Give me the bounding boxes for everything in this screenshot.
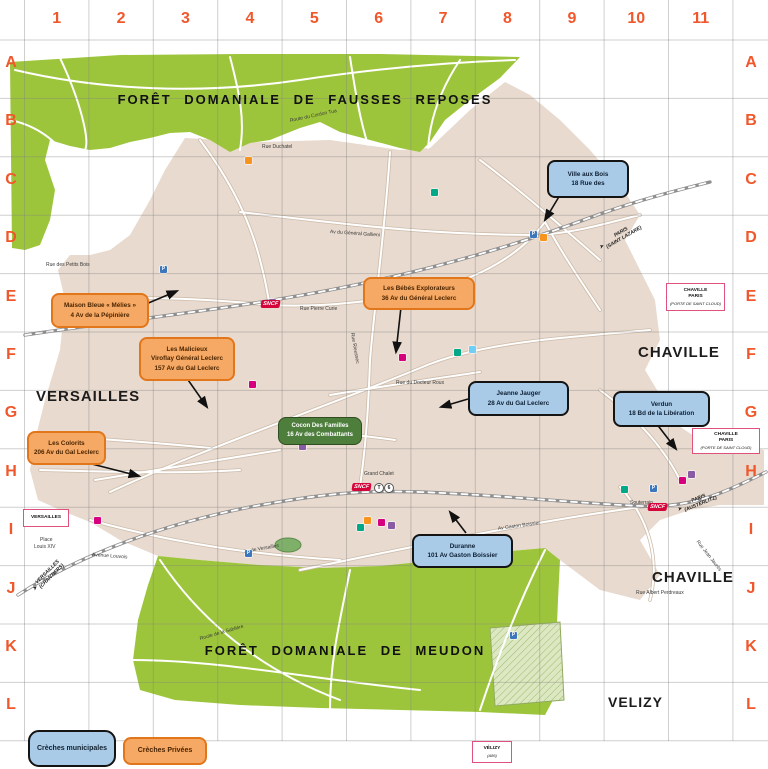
creche-callout-line: Maison Bleue « Mélies »	[64, 301, 136, 310]
street-label: Rue du Docteur Roux	[396, 380, 444, 386]
station-box-line: (PORTE DE SAINT CLOUD)	[667, 301, 724, 306]
grid-row-right-B: B	[745, 112, 757, 130]
creche-callout-jeanne-jauger: Jeanne Jauger28 Av du Gal Leclerc	[468, 381, 569, 416]
creche-callout-line: 4 Av de la Pépinière	[70, 311, 129, 320]
legend-private-label: Crèches Privées	[138, 746, 192, 755]
poi-marker-icon	[388, 522, 395, 529]
creche-callout-line: Verdun	[651, 400, 672, 409]
city-label-velizy-3: VELIZY	[608, 694, 663, 710]
grid-row-left-E: E	[6, 288, 17, 306]
direction-arrow-icon: ➤	[677, 506, 683, 513]
creche-callout-les-malicieux: Les MalicieuxViroflay Général Leclerc157…	[139, 337, 235, 381]
creche-callout-line: 16 Av des Combattants	[287, 431, 353, 440]
street-label: Grand Chalet	[364, 471, 394, 477]
parking-marker-icon: P	[245, 550, 252, 557]
grid-row-right-A: A	[745, 54, 757, 72]
grid-row-right-F: F	[746, 346, 756, 364]
poi-marker-icon	[378, 519, 385, 526]
grid-row-right-J: J	[747, 580, 756, 598]
grid-row-left-A: A	[5, 54, 17, 72]
poi-marker-icon	[540, 234, 547, 241]
grid-col-5: 5	[310, 10, 319, 28]
station-box-3: VÉLIZY(A86)	[472, 741, 512, 763]
sncf-logo-icon: SNCF	[647, 503, 667, 511]
grid-col-9: 9	[567, 10, 576, 28]
poi-marker-icon	[249, 381, 256, 388]
station-box-line: (PORTE DE SAINT CLOUD)	[693, 445, 759, 450]
legend-municipal-label: Crèches municipales	[37, 744, 107, 753]
city-label-chaville-1: CHAVILLE	[638, 344, 720, 361]
poi-marker-icon	[621, 486, 628, 493]
grid-col-11: 11	[692, 10, 709, 28]
grid-row-left-C: C	[5, 171, 17, 189]
station-box-2: VERSAILLES	[23, 509, 69, 527]
grid-row-right-G: G	[745, 404, 757, 422]
legend-creches-municipales: Crèches municipales	[28, 730, 116, 767]
poi-marker-icon	[688, 471, 695, 478]
creche-callout-line: 101 Av Gaston Boissier	[428, 551, 498, 560]
grid-row-left-J: J	[7, 580, 16, 598]
creche-callout-line: 28 Av du Gal Leclerc	[488, 399, 549, 408]
creche-callout-verdun: Verdun18 Bd de la Libération	[613, 391, 710, 427]
grid-row-right-D: D	[745, 229, 757, 247]
tram-badge-T: T	[374, 483, 384, 493]
grid-col-8: 8	[503, 10, 512, 28]
station-box-line: (A86)	[473, 753, 511, 758]
forest-label-1: FORÊT DOMANIALE DE MEUDON	[205, 643, 485, 658]
poi-marker-icon	[357, 524, 364, 531]
grid-col-7: 7	[439, 10, 448, 28]
grid-row-right-H: H	[745, 463, 757, 481]
poi-marker-icon	[454, 349, 461, 356]
grid-row-left-K: K	[5, 638, 17, 656]
poi-marker-icon	[431, 189, 438, 196]
grid-row-left-I: I	[9, 521, 13, 539]
creche-callout-line: Viroflay Général Leclerc	[151, 354, 223, 363]
city-label-chaville-2: CHAVILLE	[652, 569, 734, 586]
grid-col-6: 6	[374, 10, 383, 28]
grid-row-left-F: F	[6, 346, 16, 364]
street-label: Rue Pierre Curie	[300, 306, 337, 312]
parking-marker-icon: P	[650, 485, 657, 492]
creche-callout-cocon-des-familles: Cocon Des Familles16 Av des Combattants	[278, 417, 362, 445]
creche-callout-les-colorits: Les Colorits206 Av du Gal Leclerc	[27, 431, 106, 465]
grid-col-2: 2	[117, 10, 126, 28]
street-label: Place	[40, 537, 53, 543]
creche-callout-duranne: Duranne101 Av Gaston Boissier	[412, 534, 513, 568]
poi-marker-icon	[399, 354, 406, 361]
grid-col-4: 4	[245, 10, 254, 28]
grid-col-10: 10	[627, 10, 645, 28]
creche-callout-line: Les Malicieux	[167, 345, 208, 354]
poi-marker-icon	[94, 517, 101, 524]
station-box-0: CHAVILLEPARIS(PORTE DE SAINT CLOUD)	[666, 283, 725, 311]
street-label: Louis XIV	[34, 544, 55, 550]
poi-marker-icon	[469, 346, 476, 353]
tram-badge-6: 6	[384, 483, 394, 493]
parking-marker-icon: P	[510, 632, 517, 639]
poi-marker-icon	[245, 157, 252, 164]
poi-marker-icon	[679, 477, 686, 484]
grid-row-right-C: C	[745, 171, 757, 189]
station-box-line: VERSAILLES	[24, 515, 68, 521]
grid-col-1: 1	[52, 10, 61, 28]
creche-callout-line: 157 Av du Gal Leclerc	[155, 364, 220, 373]
grid-row-right-L: L	[746, 696, 756, 714]
grid-row-left-B: B	[5, 112, 17, 130]
grid-row-left-D: D	[5, 229, 17, 247]
creche-callout-les-bebes-explorateurs: Les Bébés Explorateurs36 Av du Général L…	[363, 277, 475, 310]
sncf-logo-icon: SNCF	[351, 483, 371, 491]
creche-callout-line: Les Colorits	[48, 439, 84, 448]
creche-callout-line: 206 Av du Gal Leclerc	[34, 448, 99, 457]
legend-creches-privees: Crèches Privées	[123, 737, 207, 765]
hatched-parcel	[490, 622, 564, 706]
creche-callout-line: Duranne	[450, 542, 476, 551]
sncf-logo-icon: SNCF	[260, 300, 280, 308]
grid-row-right-K: K	[745, 638, 757, 656]
station-box-1: CHAVILLEPARIS(PORTE DE SAINT CLOUD)	[692, 428, 760, 454]
street-label: Rue Albert Perdreaux	[636, 590, 684, 596]
grid-row-right-I: I	[749, 521, 753, 539]
creche-callout-maison-bleue-melies: Maison Bleue « Mélies »4 Av de la Pépini…	[51, 293, 149, 328]
grid-row-left-L: L	[6, 696, 16, 714]
poi-marker-icon	[364, 517, 371, 524]
creche-callout-ville-aux-bois: Ville aux Bois18 Rue des	[547, 160, 629, 198]
street-label: Rue Duchatel	[262, 144, 292, 150]
creche-callout-line: Jeanne Jauger	[496, 389, 540, 398]
grid-row-right-E: E	[746, 288, 757, 306]
creche-map-page: 1234567891011AABBCCDDEEFFGGHHIIJJKKLLFOR…	[0, 0, 768, 769]
grid-row-left-H: H	[5, 463, 17, 481]
forest-label-0: FORÊT DOMANIALE DE FAUSSES REPOSES	[118, 92, 493, 107]
grid-row-left-G: G	[5, 404, 17, 422]
street-label: Rue des Petits Bois	[46, 262, 90, 268]
creche-callout-line: Cocon Des Familles	[291, 422, 348, 431]
creche-callout-line: 18 Bd de la Libération	[629, 409, 694, 418]
creche-callout-line: Ville aux Bois	[568, 170, 609, 179]
parking-marker-icon: P	[530, 231, 537, 238]
creche-callout-line: 36 Av du Général Leclerc	[382, 294, 457, 303]
creche-callout-line: Les Bébés Explorateurs	[383, 284, 455, 293]
parking-marker-icon: P	[160, 266, 167, 273]
city-label-versailles-0: VERSAILLES	[36, 388, 140, 405]
creche-callout-line: 18 Rue des	[571, 179, 604, 188]
grid-col-3: 3	[181, 10, 190, 28]
